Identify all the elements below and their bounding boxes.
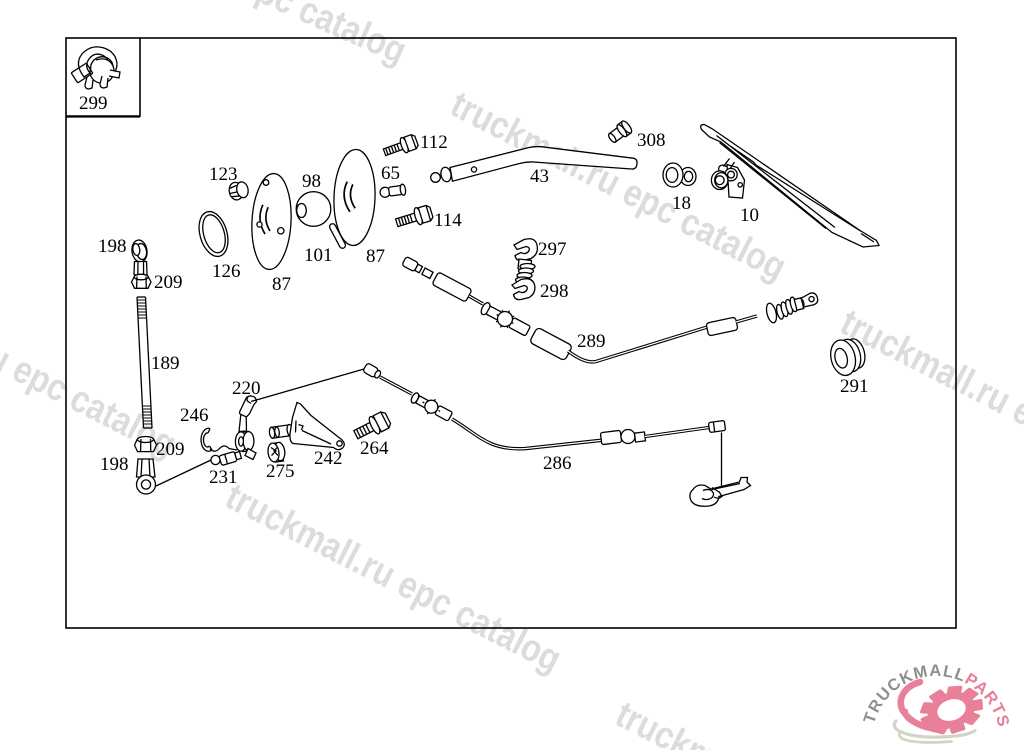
svg-text:246: 246: [180, 405, 209, 426]
svg-text:291: 291: [840, 376, 869, 397]
svg-text:289: 289: [577, 331, 606, 352]
svg-text:198: 198: [98, 236, 127, 257]
svg-text:298: 298: [540, 281, 569, 302]
svg-text:198: 198: [100, 454, 129, 475]
svg-text:10: 10: [740, 205, 759, 226]
svg-text:87: 87: [366, 246, 385, 267]
svg-text:truckmall.ru epc catalog: truckmall.ru epc catalog: [219, 476, 568, 681]
svg-text:18: 18: [672, 193, 691, 214]
svg-text:299: 299: [79, 93, 108, 114]
svg-text:242: 242: [314, 448, 343, 469]
svg-text:308: 308: [637, 130, 666, 151]
svg-text:truckmall.ru epc catalog: truckmall.ru epc catalog: [609, 694, 958, 750]
svg-text:112: 112: [420, 132, 448, 153]
svg-text:264: 264: [360, 438, 389, 459]
svg-text:231: 231: [209, 467, 238, 488]
svg-text:98: 98: [302, 171, 321, 192]
svg-text:truckmall.ru epc catalog: truckmall.ru epc catalog: [834, 302, 1024, 507]
svg-text:87: 87: [272, 274, 291, 295]
svg-text:189: 189: [151, 353, 180, 374]
svg-text:65: 65: [381, 163, 400, 184]
svg-text:114: 114: [434, 210, 462, 231]
svg-text:220: 220: [232, 378, 261, 399]
svg-text:126: 126: [212, 261, 241, 282]
svg-text:297: 297: [538, 239, 567, 260]
svg-text:275: 275: [266, 461, 295, 482]
svg-text:101: 101: [304, 245, 333, 266]
svg-text:286: 286: [543, 453, 572, 474]
svg-text:209: 209: [154, 272, 183, 293]
svg-text:123: 123: [209, 164, 238, 185]
svg-text:209: 209: [156, 439, 185, 460]
svg-text:43: 43: [530, 166, 549, 187]
